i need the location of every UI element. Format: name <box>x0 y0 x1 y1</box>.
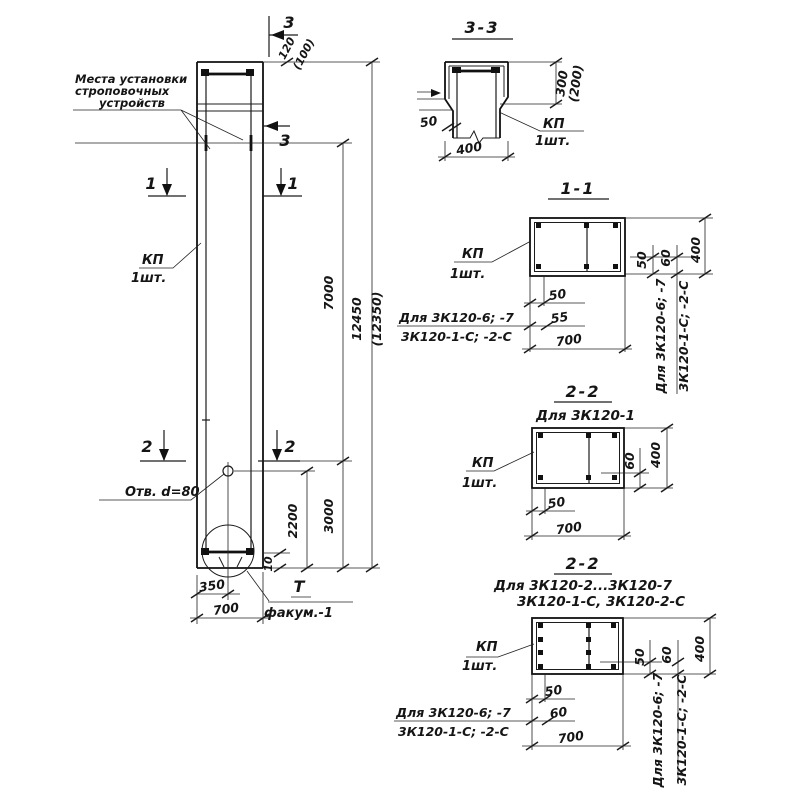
condition-line2: 3К120-1-С; -2-С <box>401 329 513 344</box>
rebar-dot <box>538 475 543 480</box>
section-2-2b-title: 2-2 <box>566 554 601 573</box>
rebar-dot <box>611 664 616 669</box>
section-2-2a-title: 2-2 <box>566 382 601 401</box>
dim-ticks <box>526 424 673 540</box>
rebar-dot <box>538 637 543 642</box>
section-2-2a-subtitle: Для 3К120-1 <box>535 408 635 424</box>
slinging-note-line3: устройств <box>99 96 165 110</box>
anchor-plate <box>246 69 254 76</box>
dim-r50: 50 <box>632 648 647 666</box>
section-1-1-title: 1-1 <box>561 179 596 198</box>
rebar-dot <box>536 264 541 269</box>
rebar-lines <box>206 72 251 554</box>
rebar-dot <box>584 223 589 228</box>
stirrup-inner <box>535 223 621 272</box>
dim-2200: 2200 <box>285 503 300 538</box>
dim-10: 10 <box>262 556 275 572</box>
extension-lines <box>75 62 380 624</box>
stirrup-inner <box>537 623 619 670</box>
arrowhead <box>431 89 441 97</box>
dim-700: 700 <box>557 728 585 747</box>
rebar-dot <box>586 664 591 669</box>
dim-r50: 50 <box>634 251 649 269</box>
rebar-dot <box>586 475 591 480</box>
dim-700: 700 <box>555 331 583 350</box>
dim-60: 60 <box>549 704 569 721</box>
rebar-dot <box>613 223 618 228</box>
column-mark: КП <box>472 456 494 471</box>
condition-right-line2: 3К120-1-С; -2-С <box>674 674 689 786</box>
arrowhead <box>162 184 172 196</box>
condition-right-line1: Для 3К120-6; -7 <box>650 672 665 788</box>
section-2-2b-subtitle1: Для 3К120-2...3К120-7 <box>493 578 672 594</box>
kp-leader <box>499 112 584 131</box>
section2-label-right: 2 <box>284 437 297 456</box>
section1-label-left: 1 <box>145 174 158 193</box>
section-outline <box>530 218 625 276</box>
section-outline <box>532 428 624 488</box>
anchor-plate <box>452 67 461 73</box>
arrowhead <box>272 449 282 461</box>
section-2-2b-subtitle2: 3К120-1-С, 3К120-2-С <box>517 594 685 610</box>
section3-label-low: 3 <box>279 131 292 150</box>
detail-name: факум.-1 <box>264 606 333 621</box>
anchor-plate <box>246 548 254 555</box>
dim-lines <box>524 428 667 536</box>
section-1-1: 1-1 КП 1шт. 50 55 700 Для 3К120-6; -7 3К… <box>397 179 713 394</box>
dim-400: 400 <box>454 138 484 158</box>
column-qty: 1шт. <box>131 271 166 286</box>
column-mark: КП <box>462 247 484 262</box>
dim-r60: 60 <box>659 646 674 664</box>
section-2-2-second: 2-2 Для 3К120-2...3К120-7 3К120-1-С, 3К1… <box>394 554 716 788</box>
dim-50: 50 <box>548 286 568 303</box>
arrowhead <box>271 30 284 40</box>
condition-line1: Для 3К120-6; -7 <box>395 705 511 720</box>
rebar-dot <box>538 623 543 628</box>
dim-r400: 400 <box>688 237 703 264</box>
dim-12450: 12450 <box>349 297 364 341</box>
dim-700: 700 <box>212 599 240 618</box>
dim-55: 55 <box>550 309 570 326</box>
section-2-2-first: 2-2 Для 3К120-1 КП 1шт. 50 700 60 400 <box>462 382 673 540</box>
dim-350: 350 <box>198 576 226 595</box>
rebar-dot <box>586 650 591 655</box>
dim-200: (200) <box>566 64 586 103</box>
rebar-dot <box>538 433 543 438</box>
section1-label-right: 1 <box>287 174 300 193</box>
anchor-plate <box>201 69 209 76</box>
dim-700: 700 <box>555 519 583 538</box>
section-3-3-title: 3-3 <box>465 18 500 37</box>
anchor-plate <box>491 67 500 73</box>
column-qty: 1шт. <box>462 476 497 491</box>
column-drawing: 3 3 1 1 2 2 Места установки строповочных… <box>0 0 800 800</box>
detail-mark: Т <box>294 577 307 596</box>
dim-50: 50 <box>547 494 567 511</box>
section-3-3: 3-3 300 (200) 50 400 КП 1шт. <box>417 18 586 161</box>
column-qty: 1шт. <box>535 134 570 149</box>
arrowhead <box>265 121 278 131</box>
condition-line2: 3К120-1-С; -2-С <box>398 724 510 739</box>
column-mark: КП <box>142 253 164 268</box>
dim-7000: 7000 <box>321 275 336 310</box>
dim-r400: 400 <box>648 442 663 469</box>
rebar-dot <box>612 475 617 480</box>
dim-50: 50 <box>544 682 564 699</box>
anchor-bars <box>203 74 254 552</box>
hole-label: Отв. d=80 <box>125 485 200 500</box>
rebar-dot <box>586 637 591 642</box>
dim-r60: 60 <box>658 249 673 267</box>
dim-r400: 400 <box>692 636 707 663</box>
base-notch <box>219 557 242 567</box>
rebar-dot <box>584 264 589 269</box>
dim-r60: 60 <box>622 452 637 470</box>
stirrup-inner <box>537 433 620 484</box>
rebar-dot <box>538 650 543 655</box>
main-elevation: 3 3 1 1 2 2 Места установки строповочных… <box>73 13 384 624</box>
column-qty: 1шт. <box>462 659 497 674</box>
lifting-band-lines <box>197 104 263 111</box>
rebar-dot <box>586 433 591 438</box>
rebar-dot <box>536 223 541 228</box>
arrowhead <box>276 184 286 196</box>
condition-line1: Для 3К120-6; -7 <box>398 310 514 325</box>
drawing-sheet: 3 3 1 1 2 2 Места установки строповочных… <box>0 0 800 800</box>
column-qty: 1шт. <box>450 267 485 282</box>
rebar-dot <box>613 264 618 269</box>
arrowhead <box>159 449 169 461</box>
rebar-lines <box>457 70 496 138</box>
rebar-dot <box>538 664 543 669</box>
dim-3000: 3000 <box>321 498 336 533</box>
condition-right-line1: Для 3К120-6; -7 <box>653 278 668 394</box>
dim-50: 50 <box>419 113 439 130</box>
section-outline <box>532 618 623 674</box>
rebar-dot <box>586 623 591 628</box>
rebar-dot <box>612 433 617 438</box>
dim-12350: (12350) <box>369 292 384 347</box>
condition-right-line2: 3К120-1-С; -2-С <box>676 280 691 392</box>
section2-label-left: 2 <box>141 437 154 456</box>
section3-label-top: 3 <box>283 13 296 32</box>
column-mark: КП <box>543 117 565 132</box>
rebar-dot <box>611 623 616 628</box>
column-mark: КП <box>476 640 498 655</box>
